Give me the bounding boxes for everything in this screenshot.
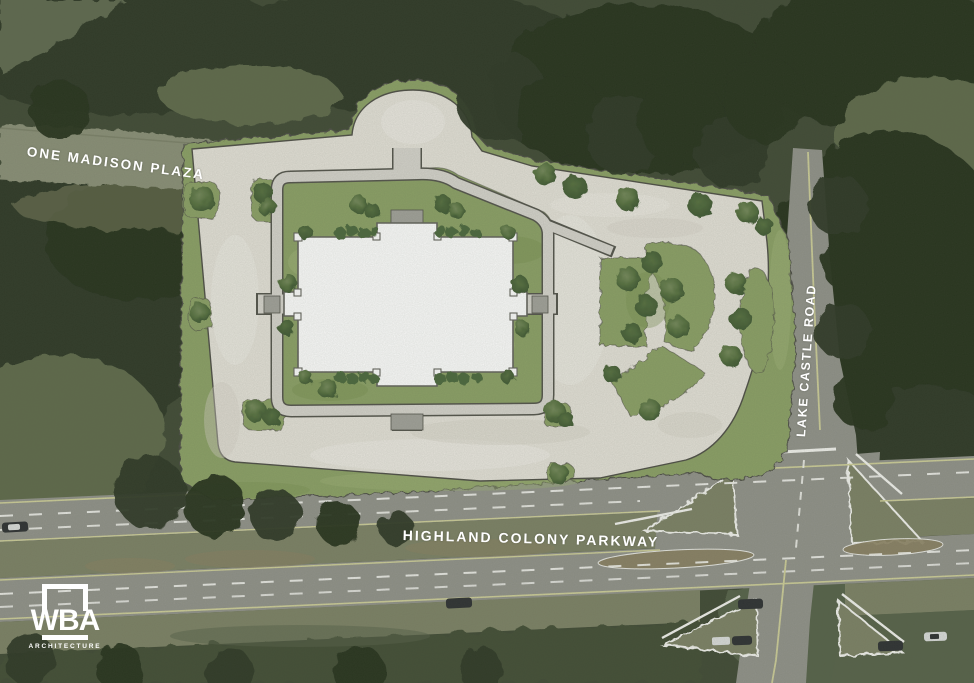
logo-subtitle: ARCHITECTURE — [28, 643, 102, 650]
logo-acronym: WBA — [28, 608, 102, 634]
wba-architecture-logo: WBA ARCHITECTURE — [28, 584, 102, 650]
site-plan-canvas — [0, 0, 974, 683]
photo-grain-overlay — [0, 0, 974, 683]
site-plan-image: ONE MADISON PLAZA HIGHLAND COLONY PARKWA… — [0, 0, 974, 683]
